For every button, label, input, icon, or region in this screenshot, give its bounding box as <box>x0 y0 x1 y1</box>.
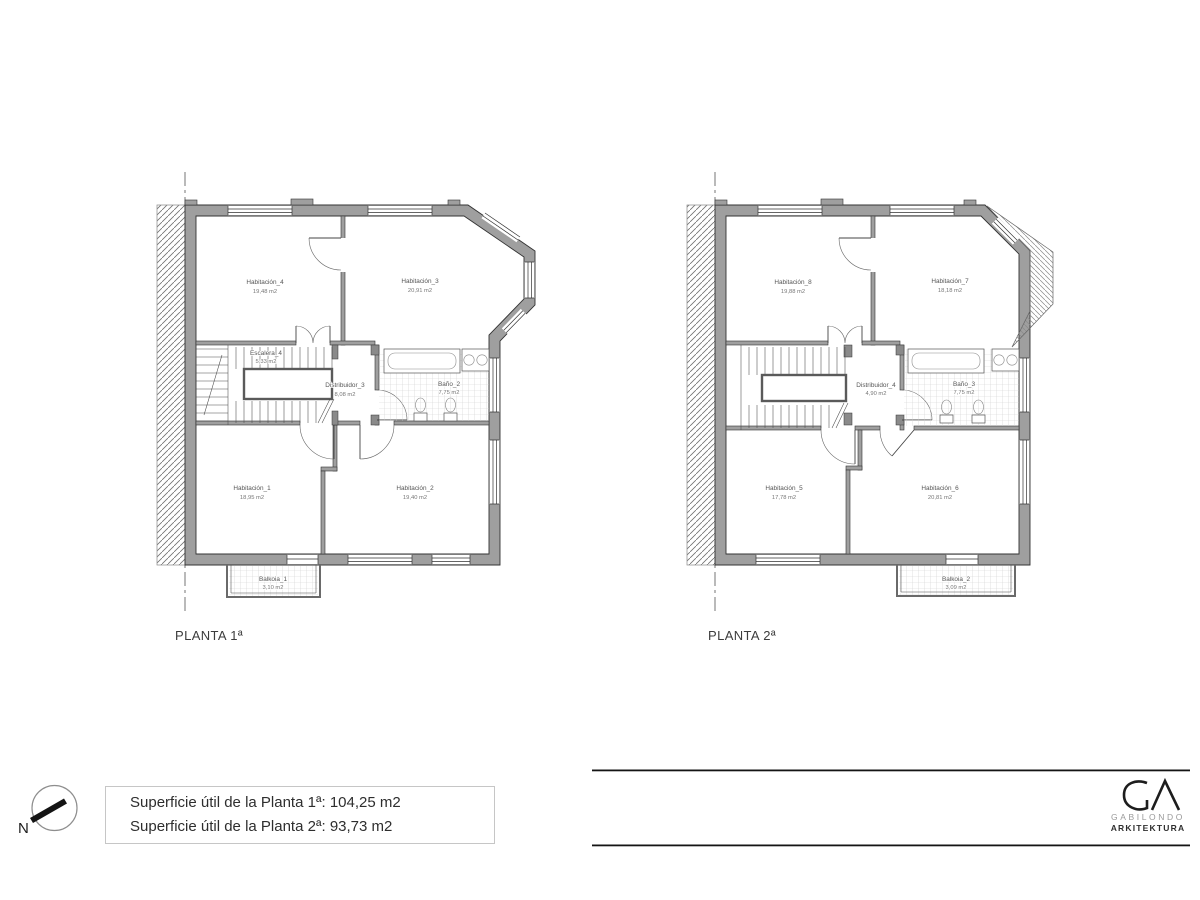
room-label: Habitación_5 <box>765 485 803 492</box>
window <box>756 555 820 564</box>
toilet <box>414 413 427 421</box>
drawing-sheet: Habitación_4 19,48 m2 Habitación_3 20,91… <box>0 0 1200 900</box>
north-compass <box>30 786 77 831</box>
title-block-rules <box>592 770 1190 847</box>
window <box>758 206 822 215</box>
bathroom <box>379 349 489 421</box>
room-label: Habitación_4 <box>246 279 284 286</box>
window <box>890 206 954 215</box>
room-area: 17,78 m2 <box>772 495 796 501</box>
room-area: 3,09 m2 <box>946 585 967 591</box>
room-label: Habitación_1 <box>233 485 271 492</box>
sink-counter <box>462 349 489 371</box>
room-area: 5,33 m2 <box>256 359 277 365</box>
room-area: 18,18 m2 <box>938 288 962 294</box>
logo-firm-name: GABILONDO <box>1096 812 1200 822</box>
room-label: Balkoia_1 <box>259 576 288 583</box>
sink-counter <box>992 349 1019 371</box>
party-wall-hatch <box>157 205 185 565</box>
room-label: Escalera_4 <box>250 350 282 357</box>
room-area: 20,81 m2 <box>928 495 952 501</box>
window <box>348 555 412 564</box>
window <box>432 555 470 564</box>
pilaster <box>715 200 727 205</box>
pilaster <box>964 200 976 205</box>
party-wall-hatch <box>687 205 715 565</box>
room-area: 7,75 m2 <box>954 390 975 396</box>
pilaster <box>821 199 843 205</box>
window <box>228 206 292 215</box>
balcony-door <box>287 555 318 564</box>
room-label: Habitación_6 <box>921 485 959 492</box>
bidet <box>972 415 985 423</box>
north-needle-icon <box>30 799 67 824</box>
window <box>1020 440 1030 504</box>
room-area: 19,40 m2 <box>403 495 427 501</box>
room-label: Distribuidor_4 <box>856 382 896 389</box>
room-area: 7,75 m2 <box>439 390 460 396</box>
floor-plan-2: Habitación_8 19,88 m2 Habitación_7 18,18… <box>687 172 1053 612</box>
balcony-door <box>946 555 978 564</box>
floor-plan-drawing: Habitación_4 19,48 m2 Habitación_3 20,91… <box>0 0 1200 900</box>
room-area: 18,95 m2 <box>240 495 264 501</box>
room-label: Balkoia_2 <box>942 576 971 583</box>
summary-line-2: Superficie útil de la Planta 2ª: 93,73 m… <box>130 818 494 835</box>
summary-line-1: Superficie útil de la Planta 1ª: 104,25 … <box>130 794 494 811</box>
room-area: 8,08 m2 <box>335 392 356 398</box>
window <box>368 206 432 215</box>
room-label: Baño_3 <box>953 381 975 388</box>
plan-2-title: PLANTA 2ª <box>708 628 776 643</box>
room-label: Habitación_2 <box>396 485 434 492</box>
room-area: 20,91 m2 <box>408 288 432 294</box>
room-area: 3,10 m2 <box>263 585 284 591</box>
pilaster <box>185 200 197 205</box>
area-summary-box: Superficie útil de la Planta 1ª: 104,25 … <box>105 786 495 844</box>
staircase <box>196 345 334 425</box>
floor-plan-1: Habitación_4 19,48 m2 Habitación_3 20,91… <box>157 172 535 612</box>
logo-firm-subtitle: ARKITEKTURA <box>1096 823 1200 833</box>
pilaster <box>448 200 460 205</box>
room-label: Habitación_8 <box>774 279 812 286</box>
window <box>490 358 500 412</box>
north-label: N <box>18 820 29 837</box>
bidet <box>444 413 457 421</box>
logo-monogram-icon <box>1124 781 1179 810</box>
room-area: 19,48 m2 <box>253 289 277 295</box>
room-label: Habitación_3 <box>401 278 439 285</box>
plan-1-title: PLANTA 1ª <box>175 628 243 643</box>
toilet <box>940 415 953 423</box>
room-label: Distribuidor_3 <box>325 382 365 389</box>
room-label: Baño_2 <box>438 381 460 388</box>
room-area: 4,90 m2 <box>866 391 887 397</box>
room-area: 19,88 m2 <box>781 289 805 295</box>
door-swings <box>296 238 407 459</box>
staircase <box>741 345 848 430</box>
window <box>490 440 500 504</box>
window <box>1020 358 1030 412</box>
room-label: Habitación_7 <box>931 278 969 285</box>
pilaster <box>291 199 313 205</box>
